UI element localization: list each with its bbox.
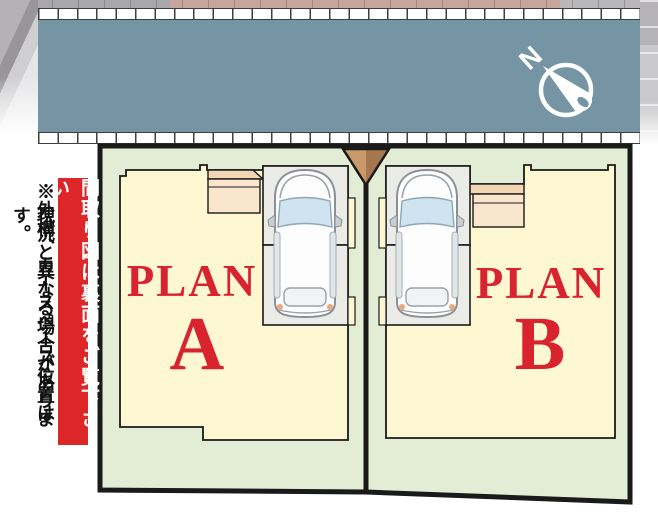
wall-tab-a-lower [348, 297, 355, 325]
disclaimer-text-col2: 現況と異なる場合があります。 [9, 206, 57, 440]
car-plan-a [268, 170, 342, 317]
wall-tab-a-upper [348, 198, 355, 248]
car-plan-b [390, 170, 464, 317]
plan-a-letter: A [170, 302, 225, 386]
plan-b-word: PLAN [476, 258, 607, 308]
porch-step-b-upper [468, 184, 524, 194]
compass: N [513, 40, 592, 115]
wall-tab-b-upper [379, 198, 386, 248]
site-plan-flyer: PLAN A PLAN B N 間取り図は裏面をご覧下さい ※外構、カースペース… [0, 0, 658, 518]
floorplan-notice-banner: 間取り図は裏面をご覧下さい [58, 178, 88, 445]
plan-a-word: PLAN [127, 256, 258, 306]
porch-step-a-lower [208, 179, 260, 213]
plan-b-letter: B [515, 302, 566, 386]
porch-step-b-lower [473, 194, 524, 227]
porch-step-a-upper [208, 170, 263, 179]
compass-north-label: N [513, 40, 548, 75]
wall-tab-b-lower [379, 297, 386, 325]
